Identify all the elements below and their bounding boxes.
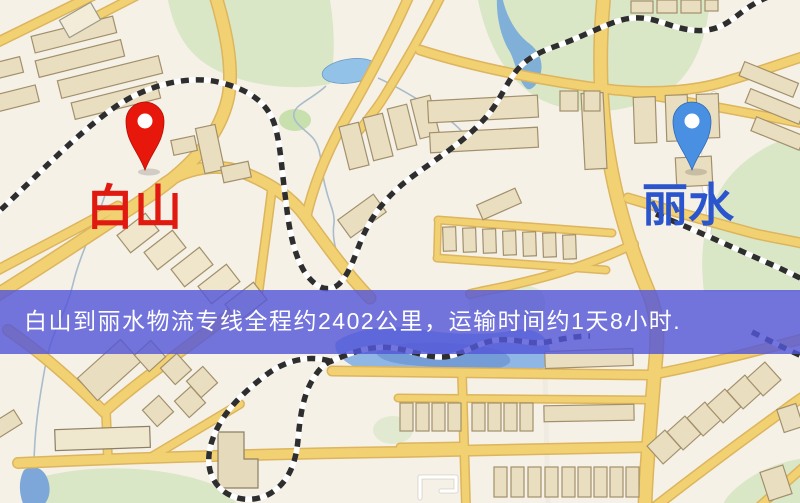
destination-pin-hole	[685, 114, 700, 129]
route-banner: 白山到丽水物流专线全程约2402公里，运输时间约1天8小时.	[0, 290, 800, 354]
origin-pin-hole	[138, 114, 153, 129]
destination-label: 丽水	[642, 179, 735, 231]
route-banner-text: 白山到丽水物流专线全程约2402公里，运输时间约1天8小时.	[24, 308, 681, 334]
map-screenshot: 白山 丽水 白山到丽水物流专线全程约2402公里，运输时间约1天8小时.	[0, 0, 800, 503]
map-canvas: 白山 丽水 白山到丽水物流专线全程约2402公里，运输时间约1天8小时.	[0, 0, 800, 503]
origin-label: 白山	[86, 182, 182, 235]
